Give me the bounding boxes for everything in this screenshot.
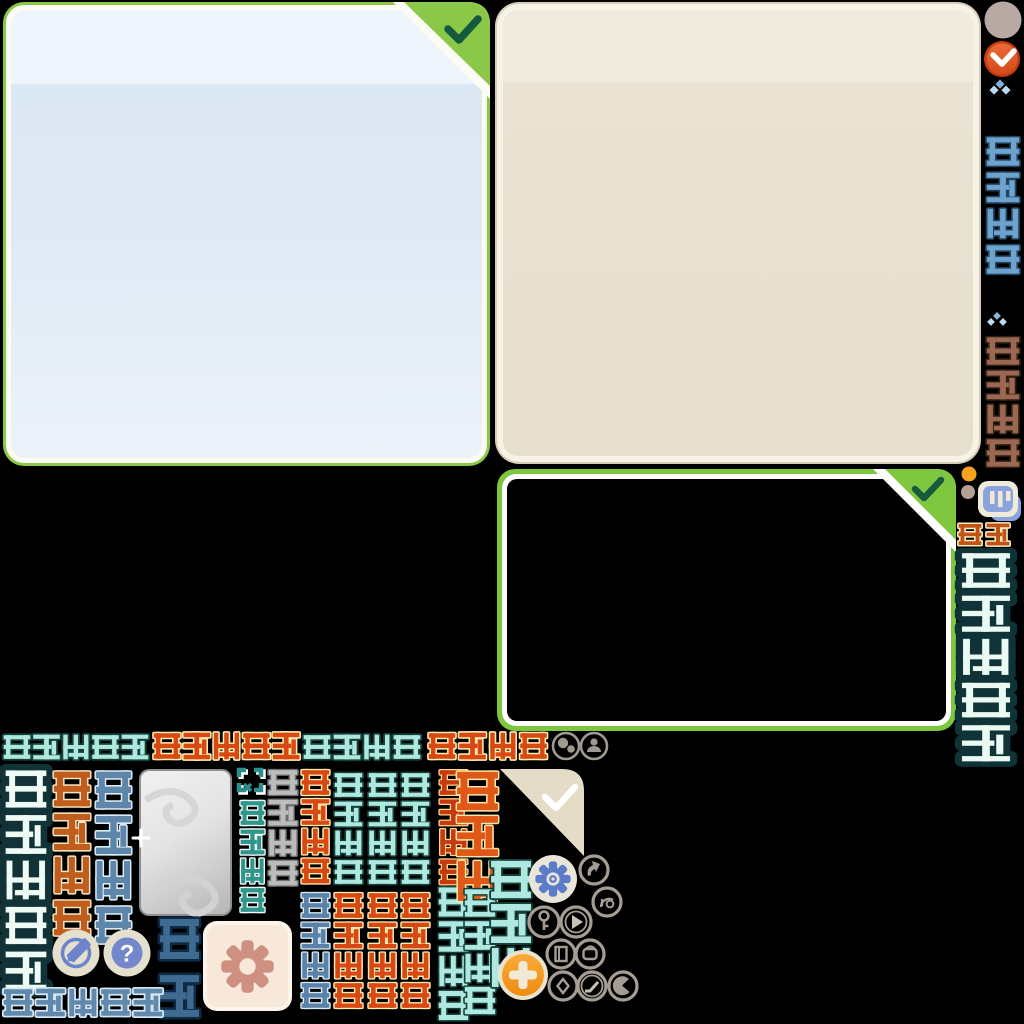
svg-text:?: ? bbox=[120, 941, 135, 968]
